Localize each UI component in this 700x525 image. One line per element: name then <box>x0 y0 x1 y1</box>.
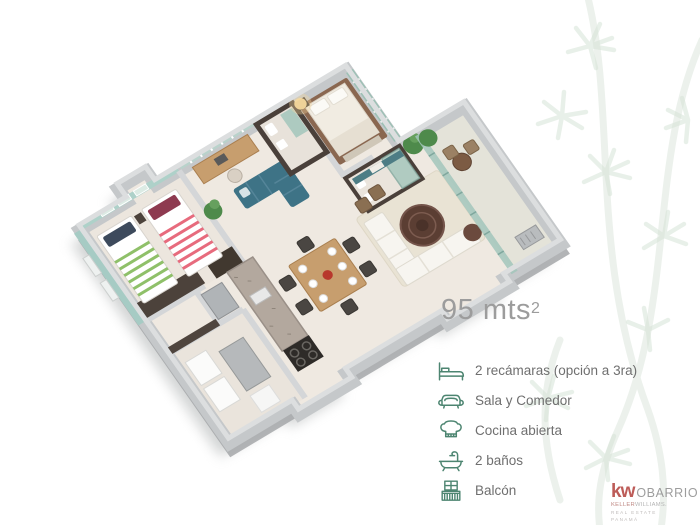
balcony-icon <box>436 477 466 503</box>
logo-keller: KELLER <box>611 502 635 508</box>
feature-label: 2 baños <box>475 453 523 468</box>
feature-label: 2 recámaras (opción a 3ra) <box>475 363 637 378</box>
feature-item-cocina: Cocina abierta <box>436 415 637 445</box>
feature-label: Balcón <box>475 483 516 498</box>
kw-monogram: kw <box>611 482 634 501</box>
logo-williams: WILLIAMS. <box>635 502 667 508</box>
area-value: 95 mts <box>441 294 531 326</box>
feature-item-balcon: Balcón <box>436 475 637 505</box>
logo-wordmark: kw OBARRIO <box>611 482 699 501</box>
features-list: 2 recámaras (opción a 3ra) Sala y Comedo… <box>436 355 637 505</box>
feature-item-banos: 2 baños <box>436 445 637 475</box>
feature-label: Cocina abierta <box>475 423 562 438</box>
feature-label: Sala y Comedor <box>475 393 572 408</box>
bed-icon <box>436 357 466 383</box>
area-superscript: 2 <box>531 300 540 317</box>
feature-item-sala: Sala y Comedor <box>436 385 637 415</box>
kw-logo: kw OBARRIO KELLERWILLIAMS. REAL ESTATE P… <box>611 482 699 523</box>
bathtub-icon <box>436 447 466 473</box>
sofa-icon <box>436 387 466 413</box>
logo-region: PANAMÁ <box>611 518 699 523</box>
logo-kellerwilliams: KELLERWILLIAMS. <box>611 503 699 509</box>
logo-realestate: REAL ESTATE <box>611 511 699 516</box>
area-label: 95 mts2 <box>441 294 540 327</box>
feature-item-recamaras: 2 recámaras (opción a 3ra) <box>436 355 637 385</box>
logo-office-name: OBARRIO <box>636 487 698 500</box>
chef-hat-icon <box>436 417 466 443</box>
slide: 95 mts2 2 recámaras (opción a 3ra) Sala … <box>0 0 700 525</box>
